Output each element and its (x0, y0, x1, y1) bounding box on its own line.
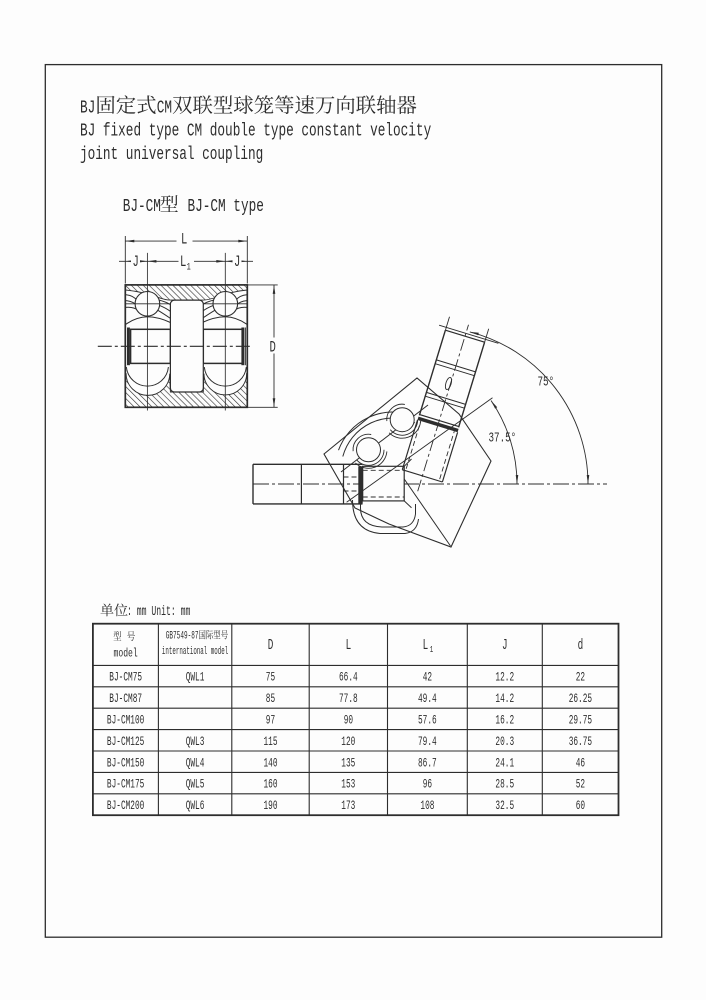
svg-text:75: 75 (266, 671, 275, 686)
svg-text:14.2: 14.2 (495, 692, 514, 707)
svg-text:BJ-CM175: BJ-CM175 (107, 778, 144, 793)
svg-text:37.5°: 37.5° (489, 430, 517, 447)
svg-text:BJ-CM: BJ-CM (123, 196, 161, 217)
svg-text:QWL6: QWL6 (186, 799, 205, 814)
svg-text:d: d (578, 637, 584, 654)
svg-text:42: 42 (423, 671, 432, 686)
svg-text:97: 97 (266, 714, 275, 729)
svg-text:66.4: 66.4 (339, 671, 358, 686)
svg-text:QWL5: QWL5 (186, 778, 205, 793)
svg-text:BJ-CM type: BJ-CM type (188, 196, 264, 217)
svg-text:1: 1 (187, 261, 191, 273)
svg-text:153: 153 (341, 778, 355, 793)
svg-text:L: L (346, 637, 352, 654)
svg-text:CM: CM (157, 97, 172, 118)
svg-text:QWL1: QWL1 (186, 671, 205, 686)
svg-text:GB7549-87: GB7549-87 (166, 630, 199, 642)
svg-text:: mm Unit: mm: : mm Unit: mm (127, 605, 191, 620)
svg-text:173: 173 (341, 799, 355, 814)
svg-text:190: 190 (264, 799, 278, 814)
svg-text:96: 96 (423, 778, 432, 793)
svg-text:BJ: BJ (80, 97, 95, 118)
svg-text:joint universal coupling: joint universal coupling (80, 144, 263, 165)
svg-text:79.4: 79.4 (418, 735, 437, 750)
svg-text:BJ-CM87: BJ-CM87 (109, 692, 142, 707)
svg-text:12.2: 12.2 (495, 671, 514, 686)
svg-text:D: D (270, 340, 276, 358)
svg-text:1: 1 (430, 645, 434, 656)
svg-text:60: 60 (576, 799, 585, 814)
svg-text:BJ-CM100: BJ-CM100 (107, 714, 144, 729)
svg-text:28.5: 28.5 (495, 778, 514, 793)
svg-text:75°: 75° (538, 374, 555, 391)
svg-text:135: 135 (341, 757, 355, 772)
svg-text:29.75: 29.75 (569, 714, 592, 729)
svg-text:J: J (234, 254, 240, 272)
svg-text:QWL3: QWL3 (186, 735, 205, 750)
svg-text:L: L (180, 254, 186, 272)
svg-text:J: J (502, 637, 508, 654)
svg-text:26.25: 26.25 (569, 692, 592, 707)
svg-text:D: D (268, 637, 274, 654)
svg-text:L: L (423, 637, 429, 654)
svg-text:90: 90 (344, 714, 353, 729)
svg-text:22: 22 (576, 671, 585, 686)
svg-text:85: 85 (266, 692, 275, 707)
svg-text:BJ-CM125: BJ-CM125 (107, 735, 144, 750)
svg-text:BJ-CM150: BJ-CM150 (107, 757, 144, 772)
svg-text:BJ-CM200: BJ-CM200 (107, 799, 144, 814)
svg-text:115: 115 (264, 735, 278, 750)
svg-text:36.75: 36.75 (569, 735, 592, 750)
svg-text:BJ-CM75: BJ-CM75 (109, 671, 142, 686)
svg-text:20.3: 20.3 (495, 735, 514, 750)
svg-text:QWL4: QWL4 (186, 757, 205, 772)
svg-text:140: 140 (264, 757, 278, 772)
svg-text:BJ fixed type CM double type c: BJ fixed type CM double type constant ve… (80, 120, 431, 141)
svg-text:77.8: 77.8 (339, 692, 358, 707)
svg-text:49.4: 49.4 (418, 692, 437, 707)
svg-text:L: L (181, 232, 187, 250)
svg-text:J: J (133, 254, 139, 272)
svg-text:model: model (114, 647, 138, 661)
svg-text:international model: international model (162, 645, 228, 657)
svg-text:16.2: 16.2 (495, 714, 514, 729)
svg-text:120: 120 (341, 735, 355, 750)
svg-text:24.1: 24.1 (495, 757, 514, 772)
svg-text:32.5: 32.5 (495, 799, 514, 814)
svg-text:160: 160 (264, 778, 278, 793)
svg-text:108: 108 (420, 799, 434, 814)
svg-text:52: 52 (576, 778, 585, 793)
svg-text:57.6: 57.6 (418, 714, 437, 729)
svg-text:46: 46 (576, 757, 585, 772)
svg-text:86.7: 86.7 (418, 757, 437, 772)
